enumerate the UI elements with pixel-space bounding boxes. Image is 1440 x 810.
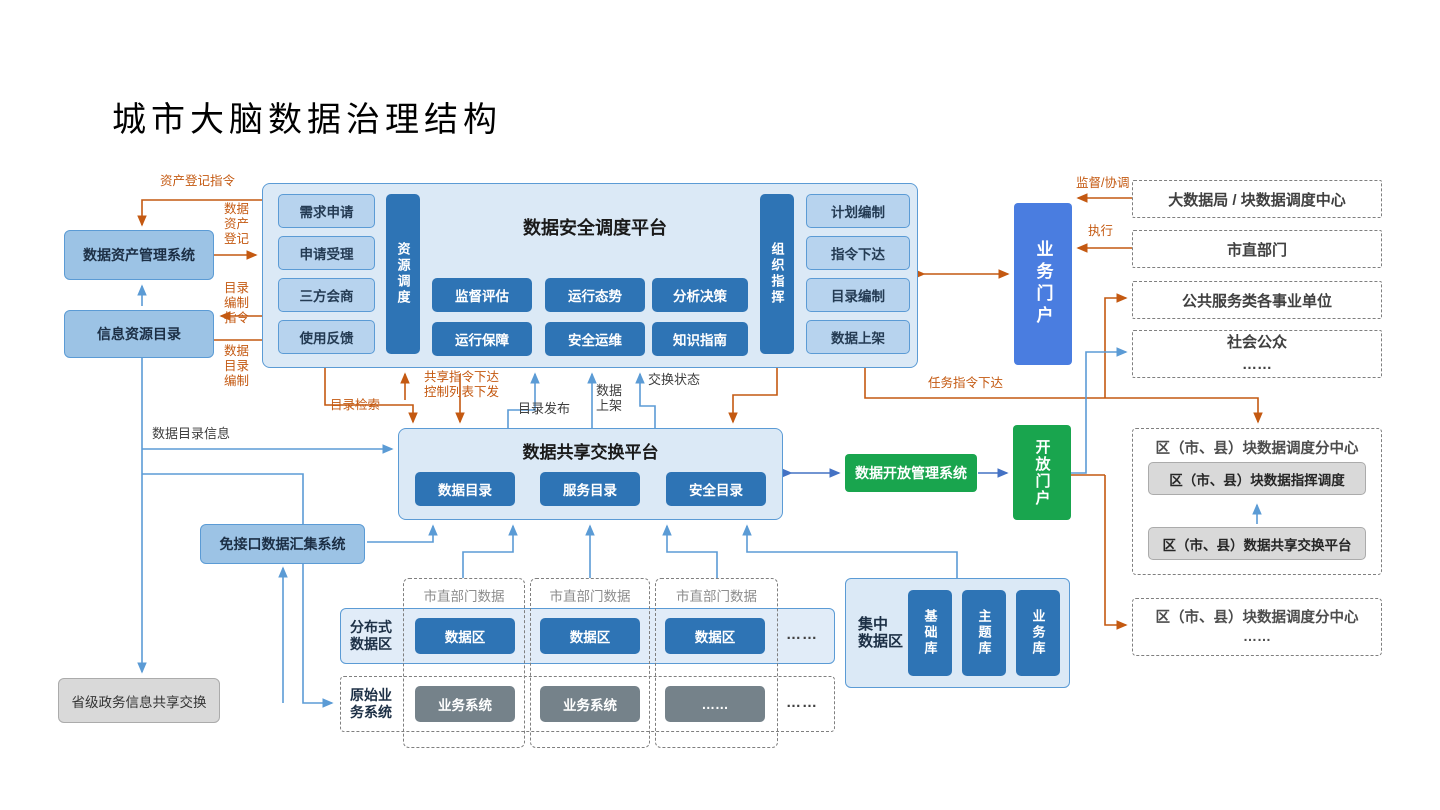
label-data-asset-reg: 数据 资产 登记	[224, 202, 249, 247]
district-command-box: 区（市、县）块数据指挥调度	[1148, 462, 1366, 495]
label-supervise: 监督/协调	[1076, 176, 1129, 191]
security-ops-box: 安全运维	[545, 322, 645, 356]
req-apply-box: 需求申请	[278, 194, 375, 228]
data-catalog-box: 数据目录	[415, 472, 515, 506]
plan-make-box: 计划编制	[806, 194, 910, 228]
cmd-issue-box: 指令下达	[806, 236, 910, 270]
business-portal-bar: 业务门户	[1014, 203, 1072, 365]
city-dept-box: 市直部门	[1132, 230, 1382, 268]
label-share-cmd: 共享指令下达 控制列表下发	[424, 370, 499, 400]
open-mgmt-system-box: 数据开放管理系统	[845, 454, 977, 492]
original-systems-label: 原始业 务系统	[350, 687, 392, 721]
public-service-box: 公共服务类各事业单位	[1132, 281, 1382, 319]
supervise-eval-box: 监督评估	[432, 278, 532, 312]
district-center-title: 区（市、县）块数据调度分中心	[1132, 437, 1382, 458]
share-platform-title: 数据共享交换平台	[398, 438, 783, 463]
data-zone-ellipsis: ……	[786, 626, 818, 643]
base-lib-box: 基础库	[908, 590, 952, 676]
org-command-bar: 组织指挥	[760, 194, 794, 354]
data-zone-box-3: 数据区	[665, 618, 765, 654]
bigdata-bureau-box: 大数据局 / 块数据调度中心	[1132, 180, 1382, 218]
label-data-shelf: 数据 上架	[596, 383, 622, 413]
knowledge-guide-box: 知识指南	[652, 322, 748, 356]
asset-mgmt-system-box: 数据资产管理系统	[64, 230, 214, 280]
run-guard-box: 运行保障	[432, 322, 532, 356]
security-platform-title: 数据安全调度平台	[430, 214, 760, 240]
label-catalog-make-cmd: 目录 编制 指令	[224, 281, 249, 326]
data-shelf-box: 数据上架	[806, 320, 910, 354]
slide-canvas: 城市大脑数据治理结构	[0, 0, 1440, 810]
data-zone-box-2: 数据区	[540, 618, 640, 654]
label-exchange-status: 交换状态	[648, 372, 700, 387]
feedback-box: 使用反馈	[278, 320, 375, 354]
dept-data-label-1: 市直部门数据	[403, 585, 525, 605]
label-task-cmd: 任务指令下达	[928, 376, 1003, 391]
biz-system-box-1: 业务系统	[415, 686, 515, 722]
service-catalog-box: 服务目录	[540, 472, 640, 506]
label-catalog-info: 数据目录信息	[152, 426, 230, 441]
data-zone-box-1: 数据区	[415, 618, 515, 654]
label-asset-reg-cmd: 资产登记指令	[160, 174, 235, 189]
biz-system-ellipsis: ……	[786, 694, 818, 711]
open-portal-bar: 开放门户	[1013, 425, 1071, 520]
district-center2-ellipsis: ……	[1132, 628, 1382, 644]
district-exchange-box: 区（市、县）数据共享交换平台	[1148, 527, 1366, 560]
label-data-catalog-make: 数据 目录 编制	[224, 344, 249, 389]
tripartite-box: 三方会商	[278, 278, 375, 312]
biz-system-ellipsis-box: ……	[665, 686, 765, 722]
public-box: 社会公众 ……	[1132, 330, 1382, 378]
security-catalog-box: 安全目录	[666, 472, 766, 506]
dept-data-label-2: 市直部门数据	[530, 585, 650, 605]
biz-lib-box: 业务库	[1016, 590, 1060, 676]
page-title: 城市大脑数据治理结构	[112, 92, 502, 141]
apply-accept-box: 申请受理	[278, 236, 375, 270]
provincial-exchange-box: 省级政务信息共享交换	[58, 678, 220, 723]
run-posture-box: 运行态势	[545, 278, 645, 312]
dept-data-label-3: 市直部门数据	[655, 585, 778, 605]
central-zone-label: 集中 数据区	[858, 616, 903, 650]
analyze-decide-box: 分析决策	[652, 278, 748, 312]
catalog-make-box: 目录编制	[806, 278, 910, 312]
label-catalog-search: 目录检索	[330, 398, 380, 413]
no-interface-collect-box: 免接口数据汇集系统	[200, 524, 365, 564]
biz-system-box-2: 业务系统	[540, 686, 640, 722]
distributed-zone-label: 分布式 数据区	[350, 619, 392, 653]
label-execute: 执行	[1088, 224, 1113, 239]
resource-dispatch-bar: 资源调度	[386, 194, 420, 354]
theme-lib-box: 主题库	[962, 590, 1006, 676]
district-center2-title: 区（市、县）块数据调度分中心	[1132, 606, 1382, 627]
info-resource-catalog-box: 信息资源目录	[64, 310, 214, 358]
label-catalog-publish: 目录发布	[518, 401, 570, 416]
